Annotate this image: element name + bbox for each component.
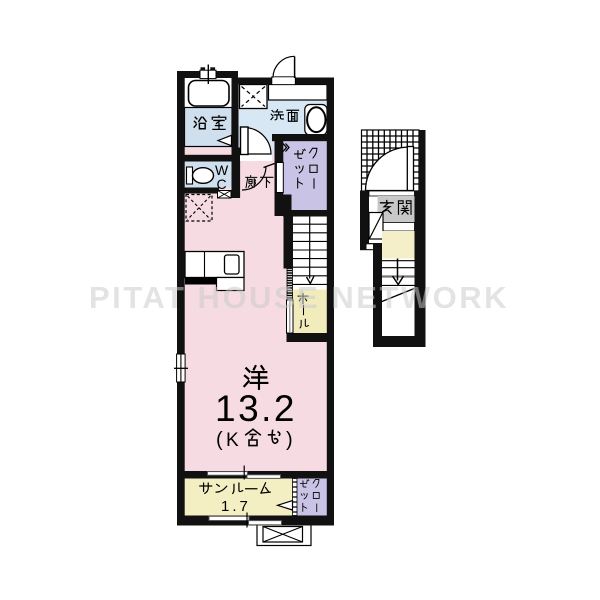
svg-text:13.2: 13.2 xyxy=(215,388,297,429)
svg-text:1.7: 1.7 xyxy=(221,498,251,515)
svg-text:): ) xyxy=(286,429,293,451)
svg-text:PITAT HOUSE NETWORK: PITAT HOUSE NETWORK xyxy=(89,280,509,315)
svg-text:C: C xyxy=(217,176,227,192)
svg-text:K: K xyxy=(226,430,239,451)
svg-text:(: ( xyxy=(216,429,223,451)
